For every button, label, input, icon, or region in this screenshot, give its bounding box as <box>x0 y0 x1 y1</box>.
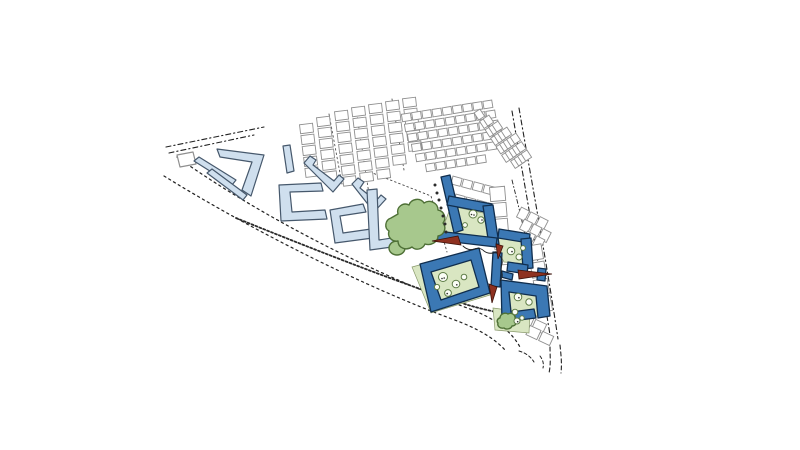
courtyard-tree <box>512 309 518 315</box>
courtyard-tree-dot <box>471 214 473 216</box>
existing-house <box>352 106 366 117</box>
existing-house <box>445 116 455 125</box>
existing-house <box>432 140 442 149</box>
existing-house <box>539 331 554 345</box>
road-north-edge-outer <box>166 127 264 147</box>
courtyard-tree-dot <box>456 284 458 286</box>
existing-house <box>473 102 483 111</box>
courtyard-tree <box>469 210 477 218</box>
existing-house <box>386 100 400 111</box>
courtyard-tree-dot <box>443 277 445 279</box>
existing-house <box>442 106 452 115</box>
courtyard-tree-dot <box>481 219 483 221</box>
existing-house <box>452 105 462 114</box>
courtyard-tree <box>520 316 524 320</box>
new-connector <box>501 271 513 280</box>
existing-house <box>369 103 383 114</box>
existing-house <box>390 133 404 144</box>
road-south-neck-left <box>549 347 550 373</box>
junction-curb-left <box>519 351 534 362</box>
existing-house <box>357 150 371 161</box>
street-tree-dot <box>436 192 439 195</box>
red-accent-gap-south <box>489 284 497 303</box>
existing-house <box>387 111 401 122</box>
existing-house <box>374 147 388 158</box>
existing-house <box>358 161 372 172</box>
existing-house <box>425 120 435 129</box>
existing-house <box>462 179 473 189</box>
junction-curb-mid <box>540 356 543 368</box>
existing-house <box>407 133 417 142</box>
existing-house <box>446 160 456 169</box>
courtyard-tree <box>461 274 467 280</box>
courtyard-tree-dot <box>441 278 443 280</box>
existing-house <box>490 186 506 201</box>
existing-house <box>354 128 368 139</box>
existing-house <box>442 138 452 147</box>
street-tree-dot <box>445 231 448 234</box>
existing-house <box>415 121 425 130</box>
existing-house <box>456 158 466 167</box>
courtyard-tree <box>434 284 439 289</box>
existing-house <box>448 126 458 135</box>
courtyard-tree <box>516 254 522 260</box>
existing-house <box>392 155 406 166</box>
existing-house <box>466 145 476 154</box>
existing-house <box>469 123 479 132</box>
existing-house <box>322 160 336 171</box>
existing-house <box>317 116 331 127</box>
existing-house <box>356 139 370 150</box>
road-south-neck-right <box>560 345 561 373</box>
existing-house <box>458 125 468 134</box>
existing-house <box>456 146 466 155</box>
courtyard-tree-dot <box>473 214 475 216</box>
courtyard-tree-dot <box>517 321 519 323</box>
existing-house <box>472 182 483 192</box>
existing-house <box>466 113 476 122</box>
courtyard-tree <box>445 290 452 297</box>
existing-house <box>301 134 315 145</box>
existing-house <box>321 149 335 160</box>
existing-house <box>302 145 316 156</box>
existing-house <box>463 103 473 112</box>
existing-house <box>388 122 402 133</box>
existing-house <box>341 165 355 176</box>
existing-house <box>436 161 446 170</box>
existing-house <box>371 125 385 136</box>
existing-house <box>425 163 435 172</box>
courtyard-tree <box>439 273 448 282</box>
existing-house <box>476 155 486 164</box>
existing-house <box>319 138 333 149</box>
courtyard-tree <box>463 223 468 228</box>
existing-house <box>335 110 349 121</box>
existing-house <box>370 114 384 125</box>
pale-slab-west-b <box>207 169 247 200</box>
existing-house <box>373 136 387 147</box>
existing-house <box>336 121 350 132</box>
existing-house <box>422 141 432 150</box>
existing-house <box>428 130 438 139</box>
courtyard-tree-dot <box>518 297 520 299</box>
courtyard-tree <box>521 246 526 251</box>
courtyard-tree-dot <box>511 251 513 253</box>
existing-house <box>432 108 442 117</box>
pale-u-block-a <box>279 183 327 221</box>
existing-house <box>438 128 448 137</box>
street-tree-dot <box>438 199 441 202</box>
existing-house <box>353 117 367 128</box>
existing-house <box>436 150 446 159</box>
courtyard-tree <box>514 318 520 324</box>
existing-house <box>462 135 472 144</box>
existing-house <box>375 158 389 169</box>
pale-u-block-b <box>330 204 373 243</box>
existing-house <box>435 118 445 127</box>
existing-house <box>340 154 354 165</box>
existing-house <box>446 148 456 157</box>
existing-house <box>401 113 411 122</box>
courtyard-tree <box>452 280 460 288</box>
pale-vertical-slab <box>283 145 294 173</box>
existing-house <box>452 136 462 145</box>
courtyard-tree <box>526 299 532 305</box>
existing-house <box>318 127 332 138</box>
existing-house <box>300 123 314 134</box>
courtyard-tree-dot <box>446 293 448 295</box>
courtyard-tree <box>507 247 515 255</box>
courtyard-tree <box>478 217 484 223</box>
existing-house <box>391 144 405 155</box>
existing-house <box>415 153 425 162</box>
existing-house <box>422 110 432 119</box>
existing-house <box>418 131 428 140</box>
street-tree-dot <box>442 215 445 218</box>
existing-house <box>404 123 414 132</box>
existing-house <box>426 151 436 160</box>
existing-house <box>477 143 487 152</box>
existing-house <box>483 100 493 109</box>
existing-house <box>466 156 476 165</box>
street-tree-dot <box>434 184 437 187</box>
existing-house <box>455 115 465 124</box>
outline-parallelogram-west <box>177 152 196 167</box>
existing-house <box>377 169 391 180</box>
existing-house <box>473 133 483 142</box>
existing-house <box>339 143 353 154</box>
existing-house <box>337 132 351 143</box>
courtyard-tree <box>514 293 522 301</box>
street-tree-dot <box>444 223 447 226</box>
masterplan-site-drawing <box>0 0 800 450</box>
existing-house <box>411 143 421 152</box>
street-tree-dot <box>440 207 443 210</box>
existing-house <box>403 97 417 108</box>
existing-house <box>412 111 422 120</box>
